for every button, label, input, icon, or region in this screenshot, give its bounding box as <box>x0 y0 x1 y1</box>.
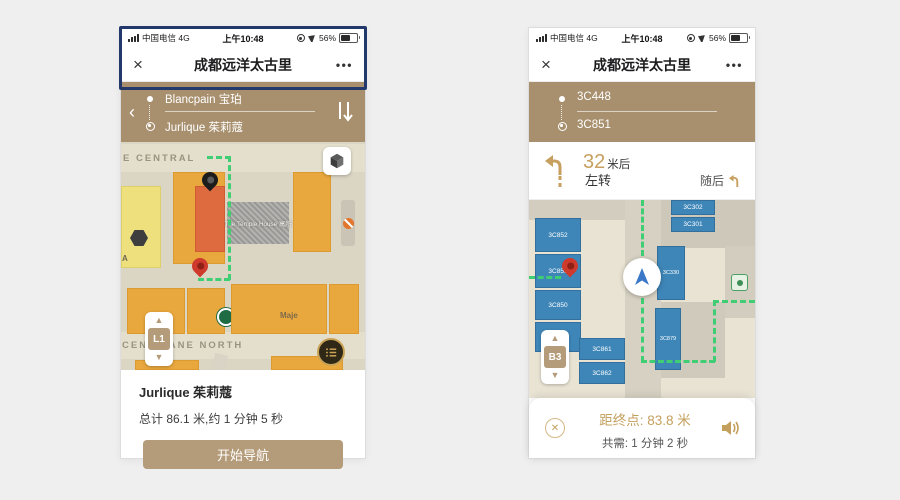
battery-icon <box>339 33 358 43</box>
back-button[interactable]: ‹ <box>129 103 135 121</box>
selected-building[interactable] <box>195 186 225 252</box>
map-building[interactable]: 3C850 <box>535 290 581 320</box>
voice-speaker-button[interactable] <box>721 420 741 436</box>
destination-pin-icon <box>558 122 567 131</box>
page-title: 成都远洋太古里 <box>121 55 365 75</box>
map-feature <box>211 353 228 370</box>
building-label: 3C852 <box>548 232 567 239</box>
location-arrow-icon <box>698 34 706 42</box>
right-phone-screenshot: 中国电信 4G 上午10:48 56% × 成都远洋太古里 ••• 3C448 … <box>529 28 755 458</box>
swap-route-button[interactable] <box>335 99 353 123</box>
route-list-button[interactable] <box>317 338 345 366</box>
status-bar: 中国电信 4G 上午10:48 56% <box>529 28 755 48</box>
building-label: 3C301 <box>683 221 702 228</box>
route-segment <box>228 156 231 280</box>
route-segment <box>713 300 716 362</box>
building-label: 3C302 <box>683 204 702 211</box>
route-segment <box>641 360 715 363</box>
turn-instruction-bar: 32米后 左转 随后 <box>529 142 755 200</box>
route-segment <box>641 298 644 362</box>
map-building-maje[interactable]: Maje <box>231 284 327 334</box>
building-label: The Temple House 寓所 <box>224 219 291 228</box>
route-segment <box>198 278 230 281</box>
orientation-lock-icon <box>687 34 695 42</box>
more-menu-button[interactable]: ••• <box>726 58 743 72</box>
floor-down-button[interactable]: ▼ <box>551 370 560 381</box>
destination-pin-icon <box>146 122 155 131</box>
zone-label: A <box>122 254 128 263</box>
route-segment <box>641 200 644 256</box>
status-bar: 中国电信 4G 上午10:48 56% <box>121 28 365 48</box>
start-dot-icon <box>559 96 565 102</box>
navigation-status-bar: ✕ 距终点: 83.8 米 共需: 1 分钟 2 秒 <box>529 398 755 458</box>
next-turn-left-arrow-icon <box>728 174 741 188</box>
map-building[interactable]: 3C301 <box>671 217 715 232</box>
route-summary-panel: Jurlique 茱莉蔻 总计 86.1 米,约 1 分钟 5 秒 开始导航 <box>121 370 365 458</box>
route-segment <box>713 300 755 303</box>
remaining-time-label: 共需: <box>602 438 628 450</box>
3d-view-button[interactable] <box>323 147 351 175</box>
heading-arrow-icon <box>630 265 654 289</box>
title-bar: × 成都远洋太古里 ••• <box>121 48 365 82</box>
route-segment <box>529 276 561 279</box>
floor-up-button[interactable]: ▲ <box>551 333 560 344</box>
remaining-time-value: 1 分钟 2 秒 <box>631 438 688 450</box>
map-side-handle[interactable] <box>341 200 355 246</box>
more-menu-button[interactable]: ••• <box>336 58 353 72</box>
mall-map-overview[interactable]: E CENTRAL CEN LANE NORTH A The Temple Ho… <box>121 142 365 370</box>
route-header: 3C448 3C851 <box>529 82 755 142</box>
floor-up-button[interactable]: ▲ <box>155 315 164 326</box>
battery-icon <box>729 33 748 43</box>
current-floor-label: B3 <box>544 346 566 368</box>
map-building <box>293 172 331 252</box>
location-arrow-icon <box>308 34 316 42</box>
start-navigation-button[interactable]: 开始导航 <box>143 440 343 469</box>
current-position-arrow <box>623 258 661 296</box>
remaining-distance-label: 距终点: <box>599 413 643 428</box>
title-bar: × 成都远洋太古里 ••• <box>529 48 755 82</box>
ramp-icon <box>343 218 354 229</box>
left-phone-screenshot: 中国电信 4G 上午10:48 56% × 成都远洋太古里 ••• ‹ Blan… <box>121 28 365 458</box>
route-end-field[interactable]: Jurlique 茱莉蔻 <box>165 119 243 135</box>
route-divider <box>577 111 717 112</box>
floor-selector[interactable]: ▲ B3 ▼ <box>541 330 569 384</box>
turn-action-label: 左转 <box>585 170 611 189</box>
route-end-field[interactable]: 3C851 <box>577 119 611 131</box>
building-label: 3C330 <box>663 270 679 276</box>
start-dot-icon <box>147 96 153 102</box>
map-building[interactable]: 3C862 <box>579 362 625 384</box>
route-header: ‹ Blancpain 宝珀 Jurlique 茱莉蔻 <box>121 82 365 142</box>
current-floor-label: L1 <box>148 328 170 350</box>
building-label: 3C879 <box>660 336 676 342</box>
map-building[interactable]: 3C861 <box>579 338 625 360</box>
route-start-field[interactable]: 3C448 <box>577 91 611 103</box>
turn-left-arrow-icon <box>543 153 569 189</box>
close-button[interactable]: × <box>541 56 551 73</box>
next-turn-label: 随后 <box>700 172 724 189</box>
exit-navigation-button[interactable]: ✕ <box>545 418 565 438</box>
route-divider <box>165 111 315 112</box>
cube-icon <box>328 152 346 170</box>
floor-down-button[interactable]: ▼ <box>155 352 164 363</box>
navigation-map[interactable]: 3C852 3C851 3C850 3C849 3C861 3C862 3C30… <box>529 200 755 398</box>
building-label: 3C862 <box>592 370 611 377</box>
facility-icon[interactable] <box>731 274 748 291</box>
map-building[interactable]: 3C330 <box>657 246 685 300</box>
route-dots-icon <box>561 105 562 120</box>
street-label: LANE NORTH <box>161 340 243 351</box>
destination-name: Jurlique 茱莉蔻 <box>139 382 347 401</box>
route-total-label: 总计 86.1 米,约 1 分钟 5 秒 <box>139 410 347 427</box>
building-label: 3C850 <box>548 302 567 309</box>
close-button[interactable]: × <box>133 56 143 73</box>
battery-percent-label: 56% <box>319 33 336 43</box>
map-building <box>329 284 359 334</box>
building-label: 3C861 <box>592 346 611 353</box>
map-building[interactable]: 3C302 <box>671 200 715 215</box>
street-label: E CENTRAL <box>123 153 195 164</box>
route-start-field[interactable]: Blancpain 宝珀 <box>165 91 242 107</box>
remaining-distance-value: 83.8 米 <box>647 413 691 428</box>
map-building-hotel[interactable]: The Temple House 寓所 <box>227 202 289 244</box>
building-label: Maje <box>280 311 298 320</box>
route-dots-icon <box>149 105 150 120</box>
list-icon <box>324 345 339 360</box>
battery-percent-label: 56% <box>709 33 726 43</box>
map-building[interactable]: 3C852 <box>535 218 581 252</box>
floor-selector[interactable]: ▲ L1 ▼ <box>145 312 173 366</box>
page-title: 成都远洋太古里 <box>529 55 755 75</box>
next-turn-preview[interactable]: 随后 <box>700 172 741 189</box>
orientation-lock-icon <box>297 34 305 42</box>
